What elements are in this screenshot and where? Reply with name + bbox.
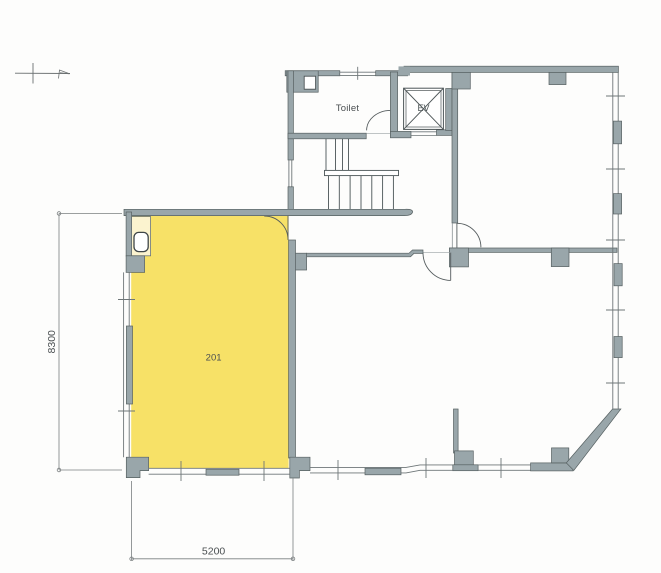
svg-text:201: 201 [206, 352, 222, 363]
svg-text:5200: 5200 [202, 546, 226, 558]
svg-text:8300: 8300 [46, 330, 58, 354]
svg-text:Toilet: Toilet [336, 103, 360, 114]
svg-text:EV: EV [417, 103, 429, 113]
